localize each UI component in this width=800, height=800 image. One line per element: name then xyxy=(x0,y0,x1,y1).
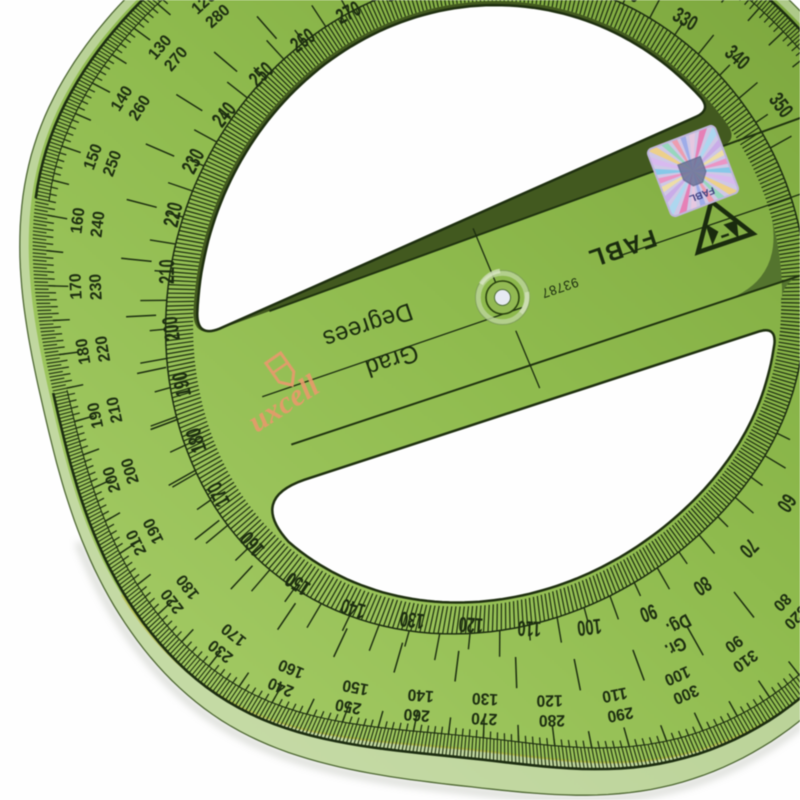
svg-text:240: 240 xyxy=(87,210,109,238)
svg-text:100: 100 xyxy=(576,614,603,641)
svg-text:110: 110 xyxy=(517,616,542,642)
svg-text:170: 170 xyxy=(66,273,86,300)
svg-text:140: 140 xyxy=(407,685,434,705)
svg-text:260: 260 xyxy=(403,705,430,725)
svg-text:120: 120 xyxy=(458,612,484,638)
svg-text:120: 120 xyxy=(536,691,562,710)
svg-text:270: 270 xyxy=(471,709,498,729)
svg-text:280: 280 xyxy=(539,711,565,730)
svg-text:200: 200 xyxy=(157,315,185,343)
svg-text:230: 230 xyxy=(86,273,106,300)
svg-text:130: 130 xyxy=(472,689,499,709)
svg-text:210: 210 xyxy=(154,259,179,283)
svg-text:130: 130 xyxy=(399,607,426,634)
svg-text:160: 160 xyxy=(67,207,89,235)
svg-text:190: 190 xyxy=(167,370,196,399)
